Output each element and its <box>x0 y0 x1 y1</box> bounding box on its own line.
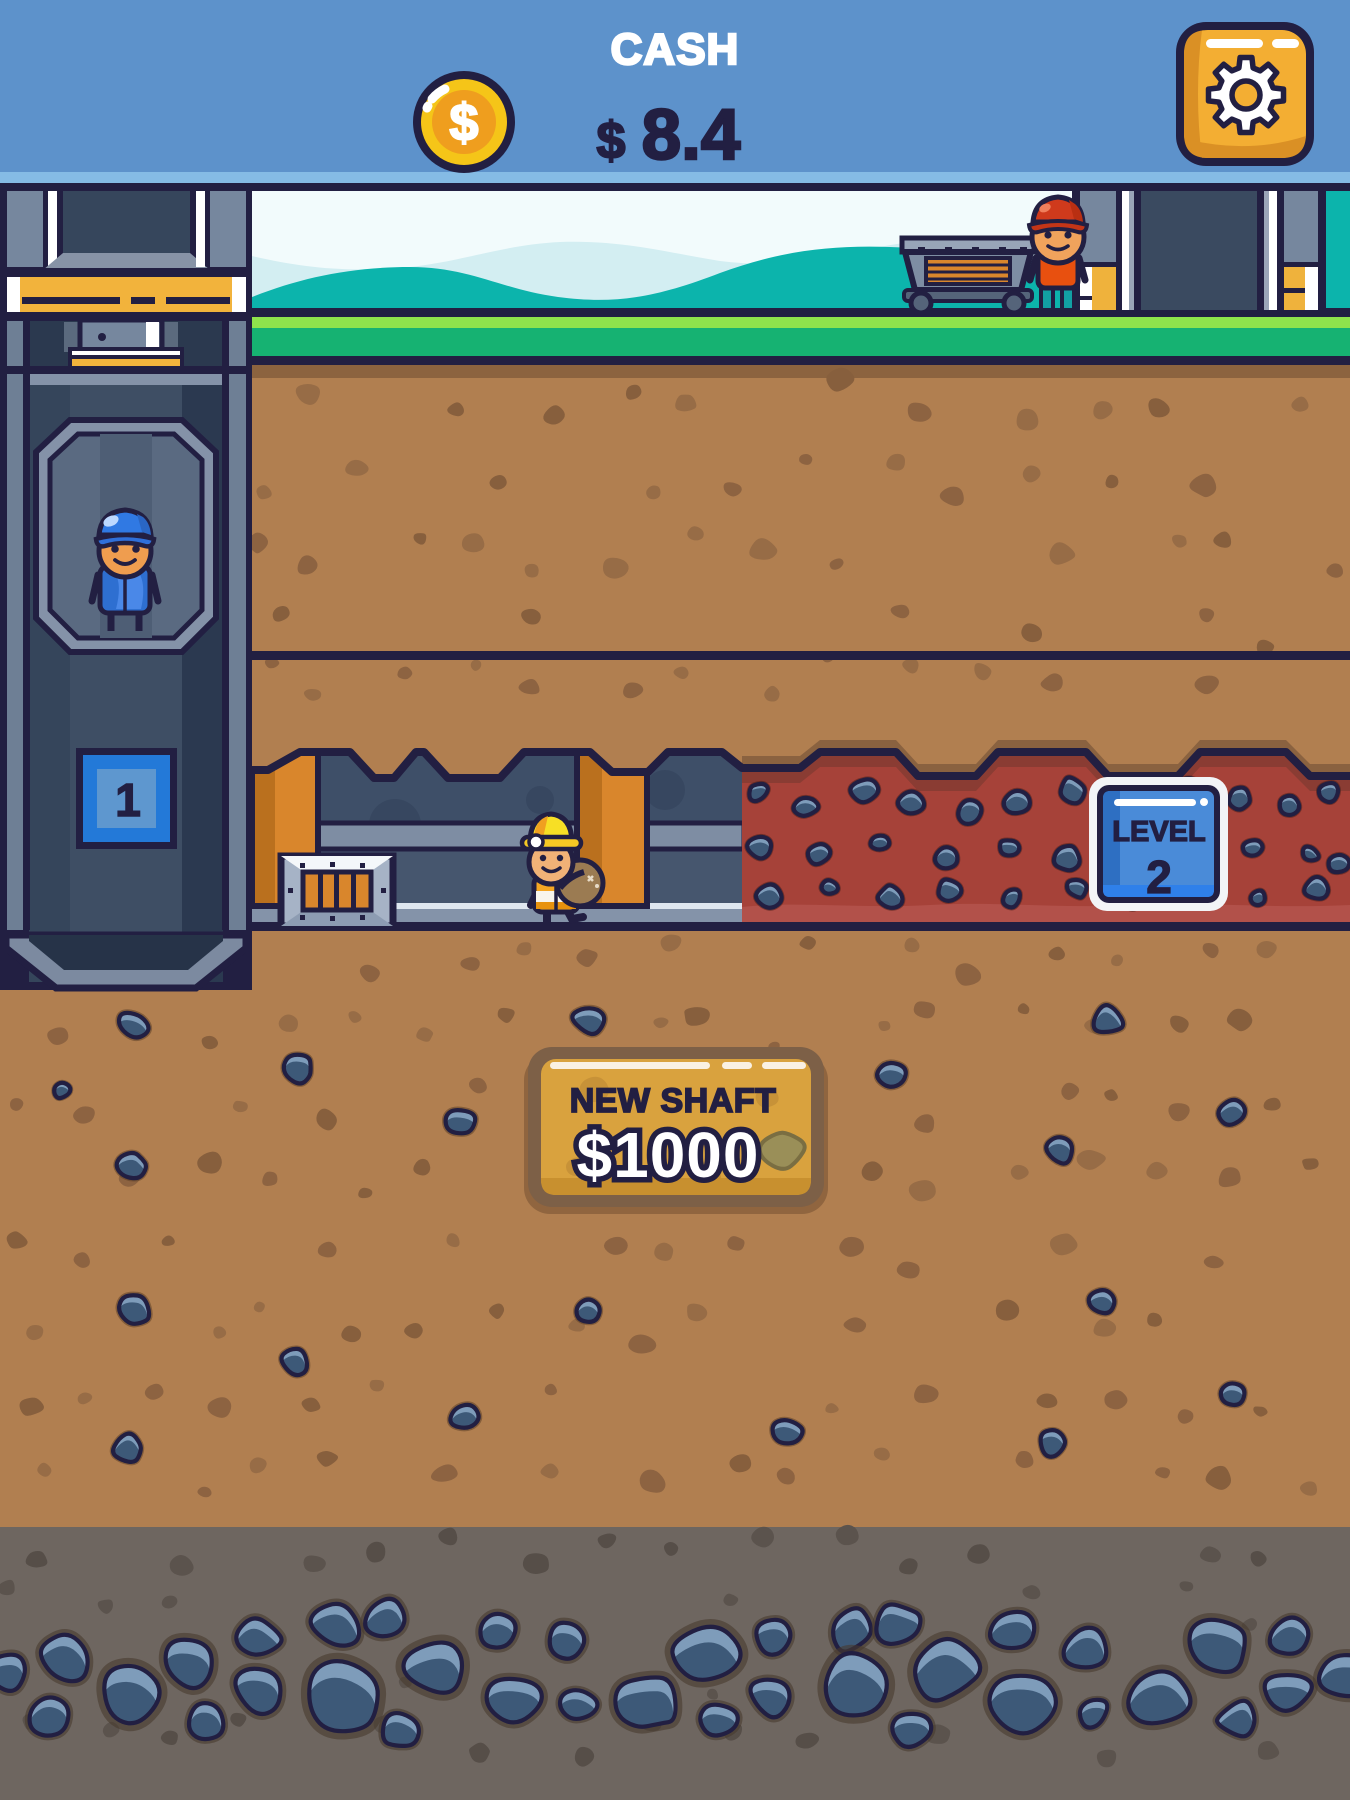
svg-text:8.4: 8.4 <box>642 96 741 175</box>
svg-text:$: $ <box>450 94 479 152</box>
svg-text:CASH: CASH <box>611 25 740 74</box>
svg-text:2: 2 <box>1146 851 1172 903</box>
svg-text:LEVEL: LEVEL <box>1112 816 1205 848</box>
svg-text:$1000: $1000 <box>577 1119 760 1191</box>
svg-text:1: 1 <box>115 774 141 826</box>
svg-text:$: $ <box>597 112 626 170</box>
svg-text:NEW SHAFT: NEW SHAFT <box>570 1082 777 1120</box>
